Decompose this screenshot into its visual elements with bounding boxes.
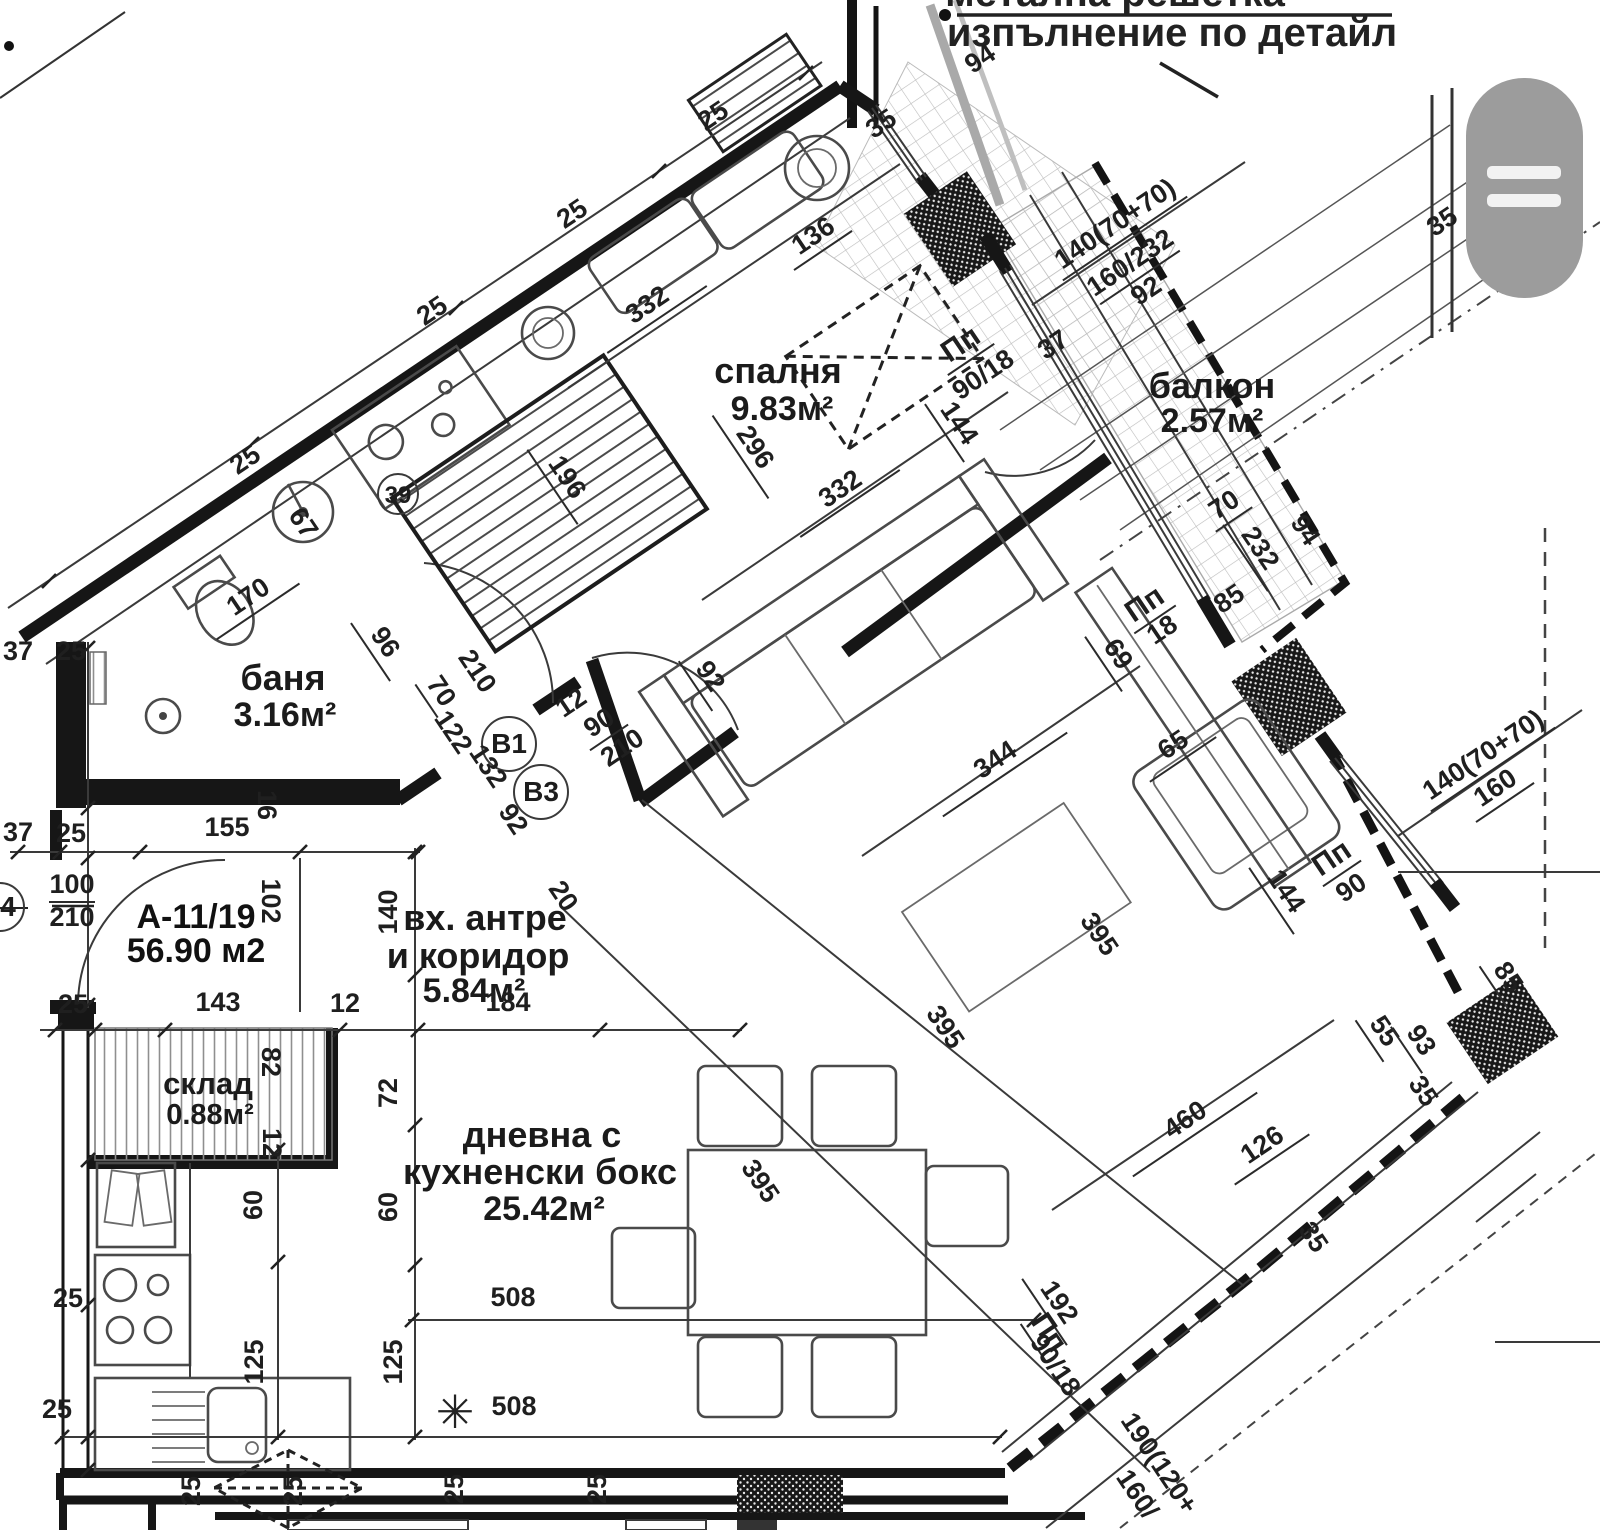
room-label-storage: склад [163,1066,253,1101]
dimension-label: 25 [411,290,453,332]
dimension-label: 93 [1401,1019,1443,1061]
dimension-label: 25 [278,1476,308,1506]
floor-plan-page: метална решетка изпълнение по детайл спа… [0,0,1600,1530]
dimension-label: 125 [378,1339,408,1384]
chair-icon [812,1337,896,1417]
room-label-hall: вх. антре [403,897,567,938]
marker-b3: В3 [523,776,559,807]
marker-axis-4: 4 [0,891,16,922]
dimension-label: 126 [1235,1120,1289,1170]
dimension-label: 25 [551,193,593,235]
dimension-label: 460 [1158,1095,1212,1145]
chair-icon [926,1166,1008,1246]
dimension-label: 25 [56,636,86,666]
dimension-label: 508 [491,1391,536,1421]
rug-icon [902,803,1131,1012]
dimension-label: 395 [920,1000,970,1054]
dimension-label: 25 [176,1476,206,1506]
wardrobe-stripes [392,355,707,651]
dimension-label: 508 [490,1282,535,1312]
room-area-balcony: 2.57м² [1161,402,1264,440]
balcony-door-arc [985,440,1095,476]
leader-line [1160,63,1218,97]
dimension-label: 70 [421,670,463,712]
dimension-label: 72 [373,1078,403,1108]
room-label-living-2: кухненски бокс [403,1151,677,1192]
dimension-label: 170 [221,572,275,622]
stool-icon [522,307,574,359]
top-annotation: метална решетка изпълнение по детайл [0,0,1397,98]
dimension-label: 332 [813,464,867,514]
dimension-label: 144 [1261,864,1311,918]
dimension-label: 144 [934,396,984,450]
dimension-label: 60 [373,1192,403,1222]
dining-table-icon [688,1150,926,1335]
dimension-label: 12 [257,1128,287,1158]
dimension-label: 12 [330,988,360,1018]
room-area-living: 25.42м² [483,1190,605,1228]
dimension-label: 102 [256,878,286,923]
chair-icon [612,1228,695,1308]
apartment-label: А-11/19 56.90 м2 [0,898,265,970]
room-label-hall-2: и коридор [387,935,570,976]
dimension-label: 55 [1364,1010,1406,1052]
dimension-label: 25 [42,1394,72,1424]
dimension-label: 25 [58,989,88,1019]
dimension-label: 35 [1403,1070,1445,1112]
chair-icon [812,1066,896,1146]
dimension-label: 140 [373,889,403,934]
dimension-label: 125 [239,1339,269,1384]
room-label-balcony: балкон [1149,365,1275,406]
dimension-label: 25 [53,1283,83,1313]
dimension-label: 37 [3,817,33,847]
room-label-bathroom: баня [240,657,325,698]
dimension-label: 35 [1293,1216,1335,1258]
dimension-label: 92 [690,655,732,697]
asterisk-symbol: ✳ [436,1386,475,1438]
dimension-label: 82 [256,1047,286,1077]
dimension-label: 100 [49,869,94,899]
dimension-label: 395 [1074,907,1124,961]
chair-icon [698,1337,782,1417]
kitchen-sink-icon [95,1378,350,1470]
dimension-label: 25 [439,1474,469,1504]
dimension-label: 16 [252,790,282,820]
dimension-label: 143 [195,987,240,1017]
menu-button[interactable] [1466,78,1583,298]
dimension-label: 395 [735,1154,785,1208]
radiator-icon [90,652,106,704]
marker-39: 39 [385,482,412,509]
apartment-id: А-11/19 [136,898,255,936]
floor-plan-drawing: метална решетка изпълнение по детайл спа… [0,0,1600,1530]
dimension-label: 184 [485,987,530,1017]
dimension-label: 90/18 [1024,1329,1087,1402]
dimension-label: 25 [56,818,86,848]
room-label-bedroom: спалня [714,350,841,391]
annotation-line2: изпълнение по детайл [947,11,1397,55]
dimension-label: 96 [365,621,407,663]
room-area-bedroom: 9.83м² [731,390,834,428]
dimension-label: 60 [238,1190,268,1220]
dimension-label: 296 [730,420,780,474]
room-area-bathroom: 3.16м² [234,696,337,734]
walls-layer [22,86,1478,1530]
dimension-label: 210 [49,902,94,932]
dimension-label: 37 [3,636,33,666]
apartment-area: 56.90 м2 [127,932,266,970]
dimension-label: 155 [204,812,249,842]
room-label-living: дневна с [463,1114,622,1155]
dimension-label: 25 [582,1474,612,1504]
dimension-label: 35 [1421,201,1463,243]
room-area-storage: 0.88м² [166,1099,254,1131]
